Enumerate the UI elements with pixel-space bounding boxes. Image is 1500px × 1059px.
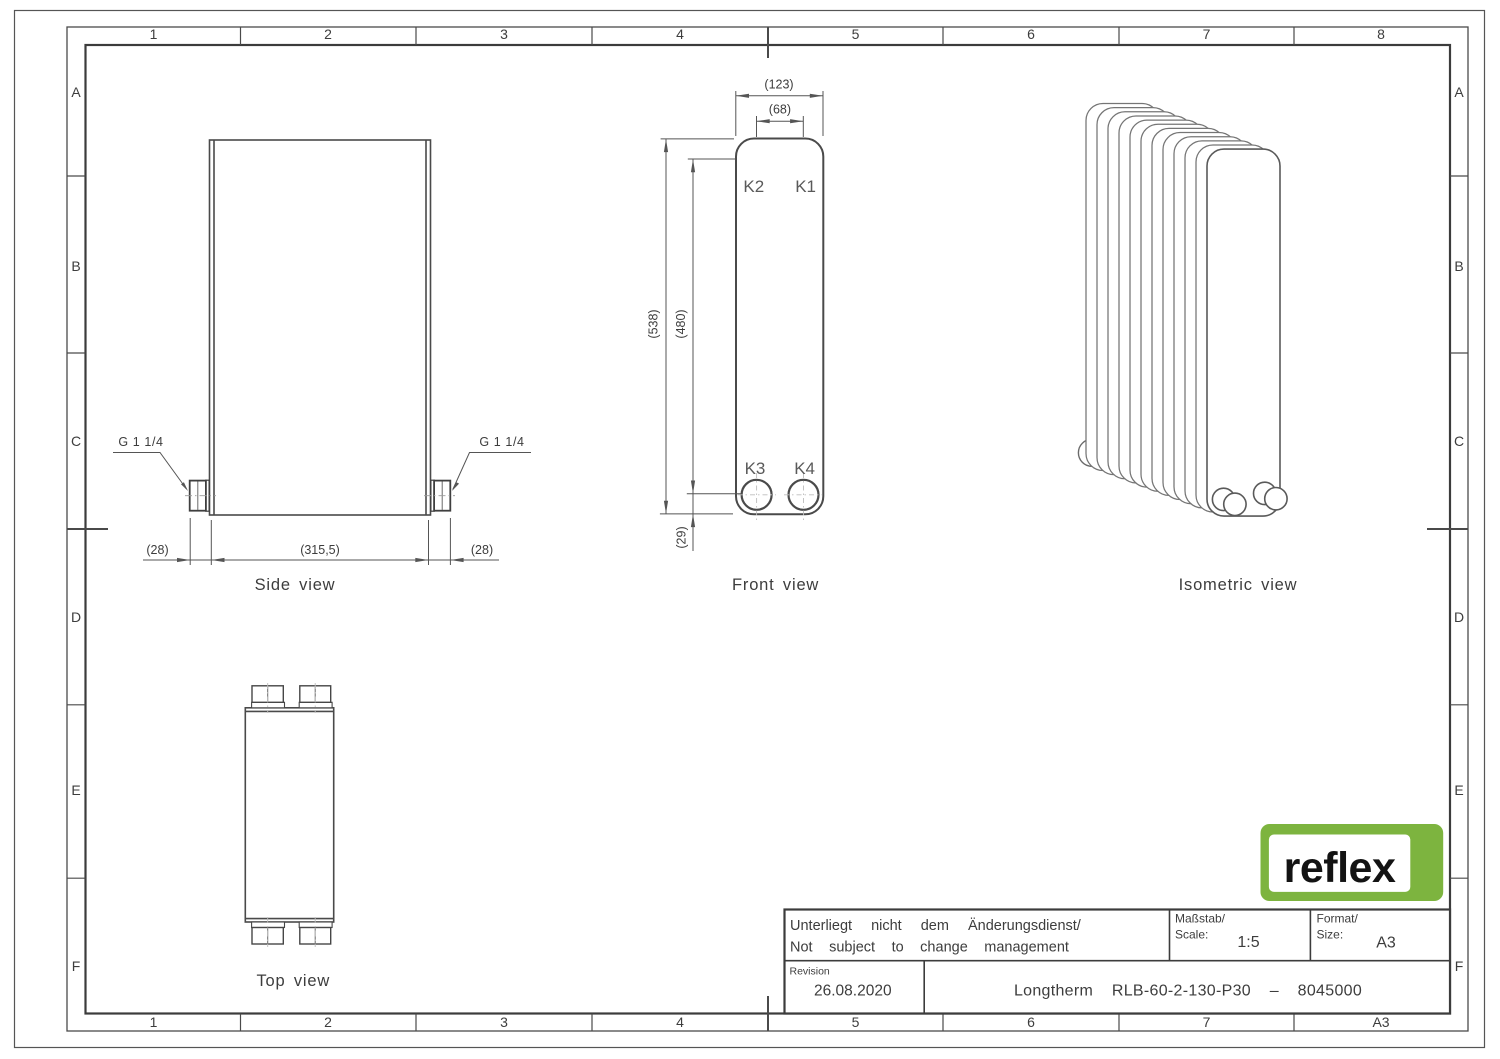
svg-text:K4: K4 <box>794 459 815 478</box>
svg-text:E: E <box>1454 782 1463 798</box>
svg-text:Maßstab/: Maßstab/ <box>1175 912 1226 926</box>
svg-text:4: 4 <box>676 1014 684 1030</box>
svg-text:(28): (28) <box>471 543 493 557</box>
svg-text:E: E <box>71 782 80 798</box>
svg-text:Longtherm RLB-60-2-130-P30 – 8: Longtherm RLB-60-2-130-P30 – 8045000 <box>1014 983 1362 1000</box>
svg-text:G 1 1/4: G 1 1/4 <box>118 435 163 449</box>
svg-text:Front view: Front view <box>732 576 819 594</box>
svg-text:Side view: Side view <box>255 576 336 594</box>
svg-text:1: 1 <box>150 1014 158 1030</box>
svg-text:A3: A3 <box>1372 1014 1389 1030</box>
svg-text:7: 7 <box>1203 26 1211 42</box>
svg-text:1:5: 1:5 <box>1237 934 1259 951</box>
svg-text:(538): (538) <box>647 309 661 338</box>
svg-text:K3: K3 <box>745 459 766 478</box>
svg-text:K2: K2 <box>743 177 764 196</box>
svg-text:A: A <box>1454 84 1464 100</box>
svg-text:D: D <box>1454 609 1464 625</box>
svg-text:C: C <box>71 433 81 449</box>
svg-text:7: 7 <box>1203 1014 1211 1030</box>
svg-text:F: F <box>72 958 81 974</box>
svg-text:reflex: reflex <box>1284 844 1396 892</box>
svg-text:5: 5 <box>852 1014 860 1030</box>
svg-text:D: D <box>71 609 81 625</box>
svg-text:(68): (68) <box>769 103 791 117</box>
svg-text:Isometric view: Isometric view <box>1179 576 1298 594</box>
svg-text:5: 5 <box>852 26 860 42</box>
svg-text:8: 8 <box>1377 26 1385 42</box>
svg-text:A3: A3 <box>1376 935 1396 952</box>
svg-text:Scale:: Scale: <box>1175 928 1208 942</box>
svg-text:B: B <box>71 258 80 274</box>
svg-text:(315,5): (315,5) <box>300 543 340 557</box>
svg-text:A: A <box>71 84 81 100</box>
svg-text:(123): (123) <box>764 78 793 92</box>
svg-text:6: 6 <box>1027 26 1035 42</box>
svg-text:4: 4 <box>676 26 684 42</box>
svg-text:3: 3 <box>500 26 508 42</box>
svg-text:Not subject to change manageme: Not subject to change management <box>790 940 1069 956</box>
svg-text:Unterliegt nicht dem Änderungs: Unterliegt nicht dem Änderungsdienst/ <box>790 917 1082 934</box>
svg-text:26.08.2020: 26.08.2020 <box>814 983 892 1000</box>
svg-text:1: 1 <box>150 26 158 42</box>
svg-text:B: B <box>1454 258 1463 274</box>
svg-text:2: 2 <box>324 1014 332 1030</box>
svg-text:(28): (28) <box>146 543 168 557</box>
svg-text:K1: K1 <box>795 177 816 196</box>
svg-text:Revision: Revision <box>790 966 830 978</box>
svg-text:3: 3 <box>500 1014 508 1030</box>
svg-text:(29): (29) <box>675 526 689 548</box>
svg-text:6: 6 <box>1027 1014 1035 1030</box>
svg-text:G 1 1/4: G 1 1/4 <box>479 435 524 449</box>
svg-text:Size:: Size: <box>1317 928 1344 942</box>
svg-text:(480): (480) <box>674 309 688 338</box>
svg-text:Top view: Top view <box>256 972 330 990</box>
svg-text:Format/: Format/ <box>1317 912 1359 926</box>
svg-text:C: C <box>1454 433 1464 449</box>
svg-text:F: F <box>1455 958 1464 974</box>
svg-text:2: 2 <box>324 26 332 42</box>
